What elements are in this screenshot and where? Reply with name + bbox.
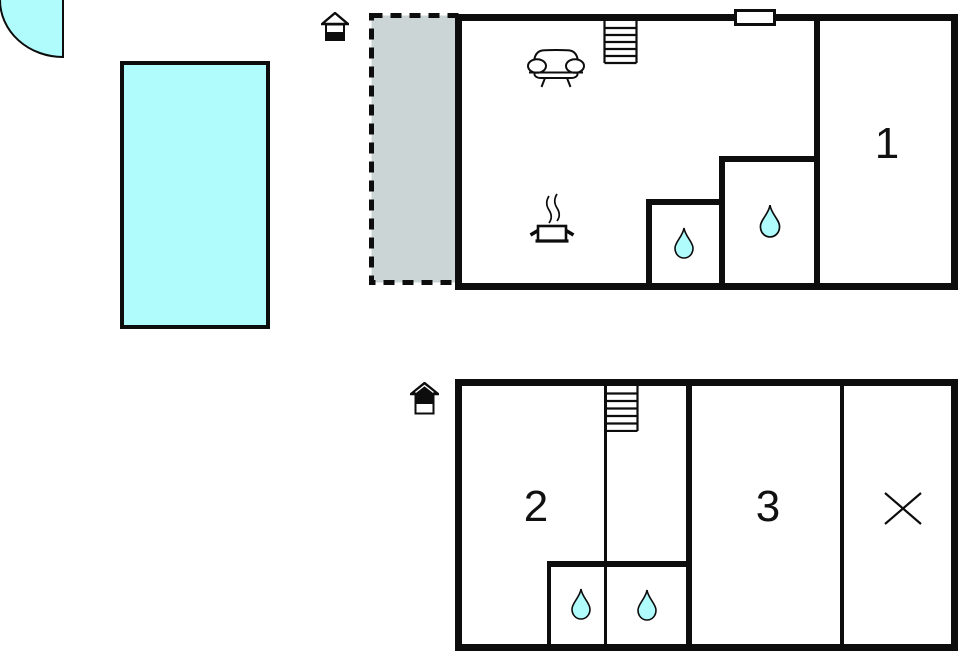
room-3-label: 3 (756, 485, 780, 529)
house-level-upper-icon (410, 382, 439, 416)
water-drop-icon (673, 227, 695, 259)
water-drop-icon (758, 204, 782, 238)
stairs-icon (606, 386, 642, 432)
stairs-icon (603, 21, 639, 65)
floor-plan-canvas: 1 2 3 (0, 0, 961, 652)
wall-segment (719, 156, 820, 162)
wall-segment (840, 386, 844, 644)
sofa-icon (527, 46, 585, 88)
window (734, 9, 776, 26)
stove-icon (529, 192, 575, 250)
terrace-dashed-area (369, 13, 461, 285)
room-2-label: 2 (524, 485, 548, 529)
wall-segment (547, 561, 551, 644)
water-drop-icon (636, 589, 658, 621)
wall-segment (814, 21, 820, 283)
wall-segment (646, 199, 725, 205)
wall-segment (547, 561, 692, 567)
water-drop-icon (570, 588, 592, 620)
house-level-ground-icon (321, 12, 349, 42)
wall-segment (686, 386, 692, 644)
quarter-circle-water-corner-icon (0, 0, 64, 59)
wall-segment (646, 199, 652, 284)
wall-segment (719, 156, 725, 284)
room-1-label: 1 (875, 122, 899, 166)
swimming-pool (120, 61, 270, 329)
crossed-area-icon (884, 492, 922, 525)
